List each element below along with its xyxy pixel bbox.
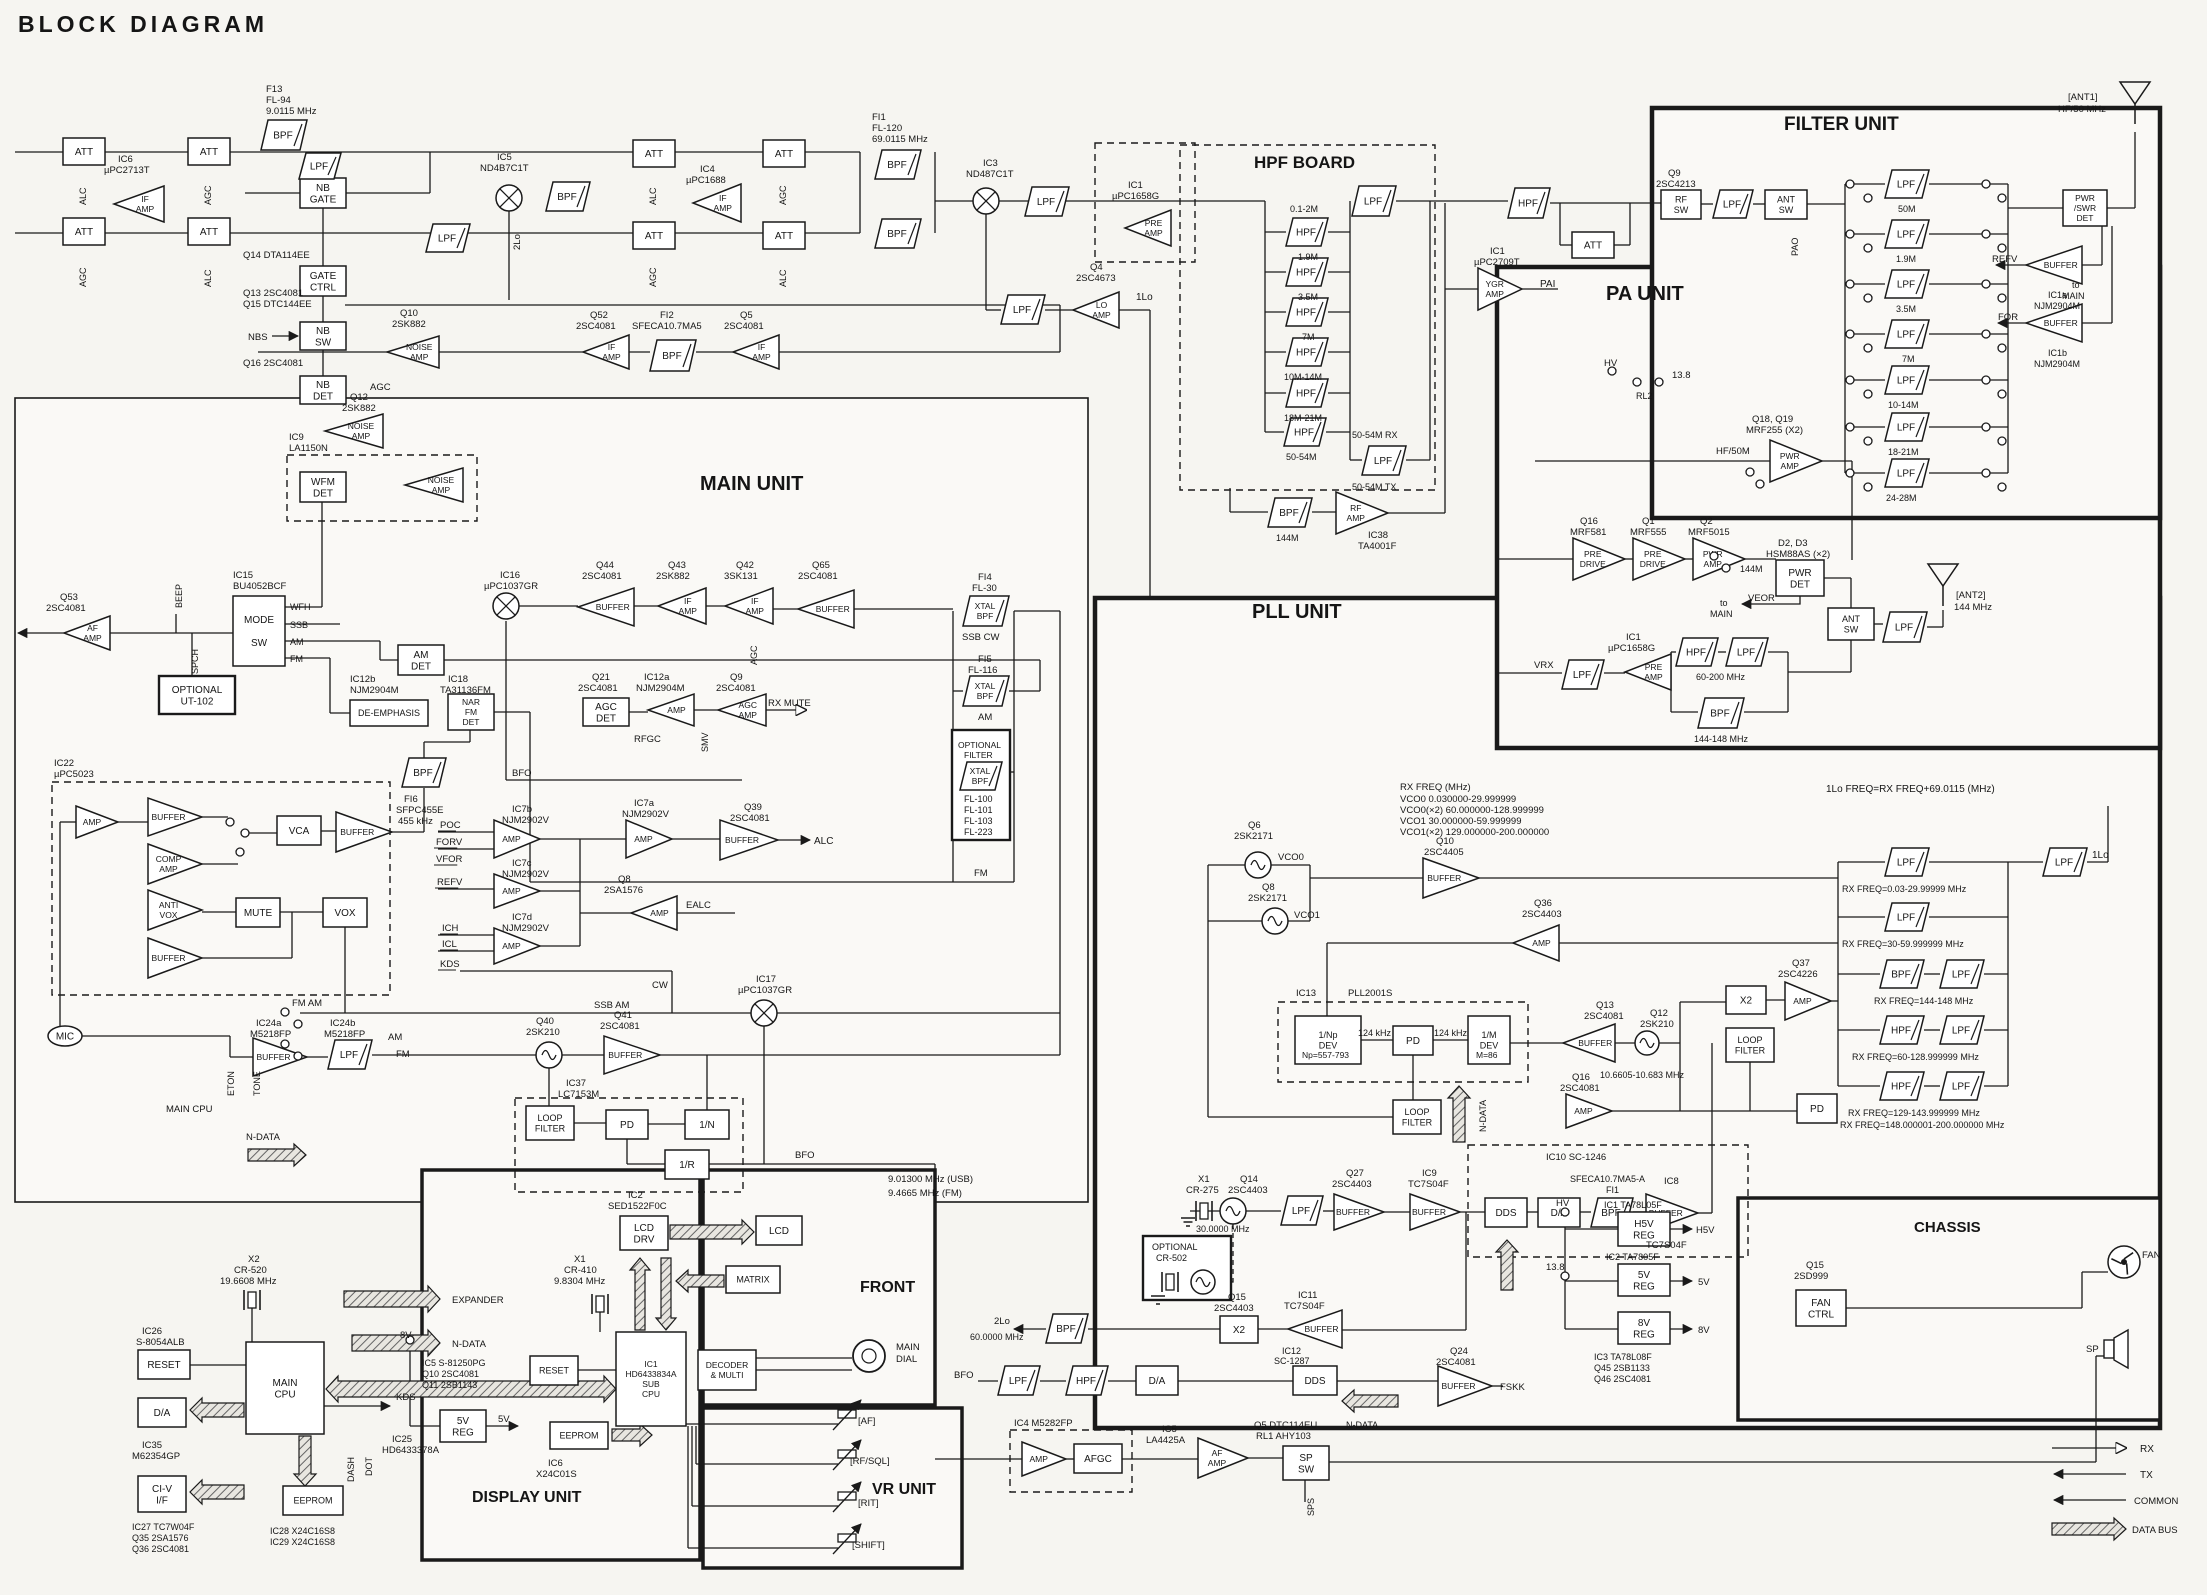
block-label: DET <box>1790 579 1810 590</box>
block-label: PD <box>1810 1104 1824 1115</box>
block-label: VOX <box>160 910 178 920</box>
block-label: AMP <box>410 352 429 362</box>
label-10m-14m: 10M-14M <box>1284 372 1322 382</box>
block-label: HPF <box>1296 348 1316 359</box>
data-bus-arrow <box>294 1436 316 1486</box>
block-label: LPF <box>1895 623 1913 634</box>
switch-contact <box>1846 376 1854 384</box>
label-sps: SPS <box>1306 1498 1316 1516</box>
block-label: LPF <box>1292 1206 1310 1217</box>
label-fan: FAN <box>2142 1250 2161 1261</box>
block-label: VCA <box>289 826 310 837</box>
block-label: AMP <box>1347 513 1366 523</box>
block-label: AMP <box>1486 289 1505 299</box>
label-rx-freq-30-59-999999-mhz: RX FREQ=30-59.999999 MHz <box>1842 939 1964 949</box>
label-main-cpu: MAIN CPU <box>166 1104 213 1115</box>
label-9-4665-mhz-fm-: 9.4665 MHz (FM) <box>888 1188 962 1199</box>
label-rx-freq-129-143-999999-mhz: RX FREQ=129-143.999999 MHz <box>1848 1108 1980 1118</box>
label-m62354gp: M62354GP <box>132 1451 180 1462</box>
potentiometer-icon <box>838 1492 856 1500</box>
label-q10: Q10 <box>400 308 418 319</box>
label-ic1: IC1 <box>1128 180 1143 191</box>
label-filter-unit: FILTER UNIT <box>1784 114 1899 135</box>
label-refv: REFV <box>1992 254 2018 265</box>
label-ic38: IC38 <box>1368 530 1388 541</box>
block-label: CTRL <box>1808 1309 1835 1320</box>
potentiometer-icon <box>838 1410 856 1418</box>
label-njm2902v: NJM2902V <box>622 809 670 820</box>
label-ic9: IC9 <box>1422 1168 1437 1179</box>
block-label: DDS <box>1304 1376 1325 1387</box>
label-am: AM <box>388 1032 402 1043</box>
label-hd6433378a: HD6433378A <box>382 1445 440 1456</box>
switch-contact <box>1998 244 2006 252</box>
label-la4425a: LA4425A <box>1146 1435 1186 1446</box>
switch-contact <box>294 1052 302 1060</box>
block-label: 8V <box>1638 1318 1651 1329</box>
label-2sc4405: 2SC4405 <box>1424 847 1464 858</box>
label-ic27-tc7w04f: IC27 TC7W04F <box>132 1522 195 1532</box>
label-d2-d3: D2, D3 <box>1778 538 1808 549</box>
label-alc: ALC <box>78 187 88 205</box>
label-filter: FILTER <box>964 750 993 760</box>
block-label: BUFFER <box>2044 318 2078 328</box>
label-q52: Q52 <box>590 310 608 321</box>
label-alc: ALC <box>814 836 833 847</box>
block-label: SW <box>1844 624 1859 634</box>
block-label: AMP <box>502 834 521 844</box>
block-label: PWR <box>1788 568 1811 579</box>
label--pc1658g: µPC1658G <box>1608 643 1655 654</box>
label-ic6: IC6 <box>548 1458 563 1469</box>
label-bu4052bcf: BU4052BCF <box>233 581 287 592</box>
block-label: AF <box>1212 1448 1223 1458</box>
block-label: LPF <box>1897 376 1915 387</box>
block-label: HPF <box>1296 268 1316 279</box>
label-cr-520: CR-520 <box>234 1265 267 1276</box>
label-q36-2sc4081: Q36 2SC4081 <box>132 1544 189 1554</box>
label-q10-2sc4081: Q10 2SC4081 <box>422 1369 479 1379</box>
label-to: to <box>1720 598 1728 608</box>
block-label: BUFFER <box>1442 1381 1476 1391</box>
label-forv: FORV <box>436 837 463 848</box>
label-13-8: 13.8 <box>1546 1262 1565 1273</box>
label-common: COMMON <box>2134 1496 2178 1507</box>
label-2sd999: 2SD999 <box>1794 1271 1828 1282</box>
label--af-: [AF] <box>858 1416 875 1427</box>
block-label: GATE <box>310 194 337 205</box>
label-2sc4081: 2SC4081 <box>716 683 756 694</box>
switch-contact <box>1756 480 1764 488</box>
block-label: ATT <box>1584 241 1602 252</box>
block-label: IF <box>758 342 766 352</box>
label--ant1-: [ANT1] <box>2068 92 2098 103</box>
block-label: IF <box>684 596 692 606</box>
switch-contact <box>1722 564 1730 572</box>
label-vrx: VRX <box>1534 660 1554 671</box>
block-label: AGC <box>595 702 617 713</box>
label-kds: KDS <box>440 959 460 970</box>
switch-contact <box>1655 378 1663 386</box>
block-label: 1/N <box>699 1120 715 1131</box>
label-q8: Q8 <box>1262 882 1275 893</box>
label-mrf555: MRF555 <box>1630 527 1666 538</box>
block-label: RESET <box>539 1366 570 1376</box>
switch-contact <box>1982 376 1990 384</box>
block-label: HPF <box>1294 428 1314 439</box>
label-main: MAIN <box>896 1342 920 1353</box>
label-x1: X1 <box>574 1254 586 1265</box>
block-label: LPF <box>1013 305 1031 316</box>
label-ic7d: IC7d <box>512 912 532 923</box>
switch-contact <box>1561 1272 1569 1280</box>
block-label: VOX <box>334 908 355 919</box>
label-tone: TONE <box>252 1071 262 1096</box>
label-50m: 50M <box>1898 204 1916 214</box>
label-hv: HV <box>1556 1198 1570 1209</box>
label-2sc4081: 2SC4081 <box>600 1021 640 1032</box>
label-ic25: IC25 <box>392 1434 412 1445</box>
label-vco1-30-000000-59-999999: VCO1 30.000000-59.999999 <box>1400 816 1522 827</box>
label-smv: SMV <box>700 732 710 752</box>
label-q41: Q41 <box>614 1010 632 1021</box>
block-label: H5V <box>1634 1219 1654 1230</box>
label-ic29-x24c16s8: IC29 X24C16S8 <box>270 1537 335 1547</box>
block-label: HPF <box>1518 199 1538 210</box>
label-13-8: 13.8 <box>1672 370 1691 381</box>
label-q9: Q9 <box>1668 168 1681 179</box>
label-q39: Q39 <box>744 802 762 813</box>
block-label: NOISE <box>428 475 455 485</box>
block-label: BUFFER <box>1578 1038 1612 1048</box>
label--rit-: [RIT] <box>858 1498 879 1509</box>
block-label: DRIVE <box>1580 559 1606 569</box>
block-label: BPF <box>1891 970 1910 981</box>
label-vco0-2-60-000000-128-999999: VCO0(×2) 60.000000-128.999999 <box>1400 805 1544 816</box>
label-ic17: IC17 <box>756 974 776 985</box>
block-label: FILTER <box>1402 1117 1433 1127</box>
label-ic6: IC6 <box>118 154 133 165</box>
label-veor: VEOR <box>1748 593 1775 604</box>
label-pao: PAO <box>1790 238 1800 256</box>
label-q27: Q27 <box>1346 1168 1364 1179</box>
label-wfh: WFH <box>290 602 311 612</box>
label-q37: Q37 <box>1792 958 1810 969</box>
label-rl1-ahy103: RL1 AHY103 <box>1256 1431 1311 1442</box>
label-rl2: RL2 <box>1636 391 1653 401</box>
block-label: DET <box>313 488 333 499</box>
label-fi5: FI5 <box>978 654 992 665</box>
label-agc: AGC <box>370 382 391 393</box>
block-label: IF <box>141 194 149 204</box>
label-ic12: IC12 <box>1282 1346 1301 1356</box>
label-50-54m: 50-54M <box>1286 452 1317 462</box>
label-2sc4673: 2SC4673 <box>1076 273 1116 284</box>
label-vco0: VCO0 <box>1278 852 1304 863</box>
main-dial[interactable] <box>853 1340 885 1372</box>
label-sfeca10-7ma5-a: SFECA10.7MA5-A <box>1570 1174 1645 1184</box>
switch-contact <box>281 1040 289 1048</box>
label-sed1522f0c: SED1522F0C <box>608 1201 667 1212</box>
block-label: LPF <box>1009 1376 1027 1387</box>
label-2sk2171: 2SK2171 <box>1248 893 1287 904</box>
block-label: BPF <box>972 776 989 786</box>
label-hf-50-mhz: HF/50 MHz <box>2058 104 2106 115</box>
label-dial: DIAL <box>896 1354 917 1365</box>
label-69-0115-mhz: 69.0115 MHz <box>872 134 928 145</box>
label-alc: ALC <box>778 269 788 287</box>
block-label: LPF <box>1897 423 1915 434</box>
block-label: LPF <box>1897 280 1915 291</box>
block-label: AMP <box>1208 1458 1227 1468</box>
label-bfo: BFO <box>954 1370 974 1381</box>
block-label: NOISE <box>406 342 433 352</box>
block-label: BPF <box>977 611 994 621</box>
label-ic4-m5282fp: IC4 M5282FP <box>1014 1418 1073 1429</box>
block-label: LPF <box>1037 197 1055 208</box>
switch-contact <box>1864 194 1872 202</box>
label-124-khz: 124 kHz <box>1358 1028 1392 1038</box>
block-label: SW <box>251 638 268 649</box>
label-1lo-freq-rx-freq-69-0115-mhz-: 1Lo FREQ=RX FREQ+69.0115 (MHz) <box>1826 784 1995 795</box>
label-rx-freq-144-148-mhz: RX FREQ=144-148 MHz <box>1874 996 1974 1006</box>
block-label: LPF <box>310 162 328 173</box>
label-pai: PAI <box>1540 279 1555 290</box>
label-2sc4081: 2SC4081 <box>578 683 618 694</box>
label-x2: X2 <box>248 1254 260 1265</box>
label-ic5-s-81250pg: IC5 S-81250PG <box>422 1358 486 1368</box>
label-njm2904m: NJM2904M <box>350 685 399 696</box>
block-label: AMP <box>679 606 698 616</box>
label-njm2902v: NJM2902V <box>502 869 550 880</box>
label-2sc4081: 2SC4081 <box>1436 1357 1476 1368</box>
label-fm: FM <box>974 868 988 879</box>
label-ic10-sc-1246: IC10 SC-1246 <box>1546 1152 1606 1163</box>
label-main-unit: MAIN UNIT <box>700 473 803 495</box>
label-ic9: IC9 <box>289 432 304 443</box>
block-label: ATT <box>645 231 663 242</box>
label-block-diagram: BLOCK DIAGRAM <box>18 11 268 37</box>
block-label: AMP <box>159 864 178 874</box>
label-fl-30: FL-30 <box>972 583 997 594</box>
switch-contact <box>1982 330 1990 338</box>
label-144m: 144M <box>1740 564 1763 574</box>
block-label: SW <box>315 337 332 348</box>
block-label: BPF <box>557 192 576 203</box>
block-label: LPF <box>1897 469 1915 480</box>
label-chassis: CHASSIS <box>1914 1219 1981 1236</box>
label-60-0000-mhz: 60.0000 MHz <box>970 1332 1024 1342</box>
label-q65: Q65 <box>812 560 830 571</box>
label-2sk210: 2SK210 <box>1640 1019 1674 1030</box>
label-7m: 7M <box>1302 332 1315 342</box>
switch-contact <box>1864 244 1872 252</box>
block-label: CTRL <box>310 282 337 293</box>
label-hv: HV <box>1604 358 1618 369</box>
label-2sc4081: 2SC4081 <box>724 321 764 332</box>
label-ic7b: IC7b <box>512 804 532 815</box>
label-am: AM <box>978 712 992 723</box>
switch-contact <box>1998 344 2006 352</box>
label-q15: Q15 <box>1228 1292 1246 1303</box>
block-label: 1/R <box>679 1160 695 1171</box>
block-label: BPF <box>273 131 292 142</box>
label-tc7s04f: TC7S04F <box>1646 1240 1687 1251</box>
block-label: LO <box>1096 300 1108 310</box>
switch-contact <box>294 1020 302 1028</box>
block-label: BUFFER <box>1412 1207 1446 1217</box>
label-fi6: FI6 <box>404 794 418 805</box>
label-optional: OPTIONAL <box>958 740 1001 750</box>
label-fl-94: FL-94 <box>266 95 291 106</box>
label--pc5023: µPC5023 <box>54 769 94 780</box>
label-s-8054alb: S-8054ALB <box>136 1337 185 1348</box>
label-vco0-0-030000-29-999999: VCO0 0.030000-29.999999 <box>1400 794 1516 805</box>
block-label: NB <box>316 380 330 391</box>
block-label: BUFFER <box>1304 1324 1338 1334</box>
block-label: BUFFER <box>1427 873 1461 883</box>
block-label: MUTE <box>244 908 273 919</box>
block-label: AMP <box>502 886 521 896</box>
label-vr-unit: VR UNIT <box>872 1481 936 1498</box>
block-label: DET <box>596 713 616 724</box>
label-2sc4226: 2SC4226 <box>1778 969 1818 980</box>
label-hpf-board: HPF BOARD <box>1254 153 1355 172</box>
label-alc: ALC <box>203 269 213 287</box>
block-label: DET <box>411 661 431 672</box>
label-q5: Q5 <box>740 310 753 321</box>
label-ealc: EALC <box>686 900 711 911</box>
antenna-icon <box>2120 82 2150 104</box>
crystal-icon <box>1200 1203 1208 1219</box>
label-q1: Q1 <box>1642 516 1655 527</box>
block-label: BUFFER <box>1336 1207 1370 1217</box>
label-ic3-ta78l08f: IC3 TA78L08F <box>1594 1352 1652 1362</box>
block-label: PRE <box>1145 218 1163 228</box>
block-label: PD <box>1406 1036 1420 1047</box>
block-label: 5V <box>457 1416 470 1427</box>
label-nd487c1t: ND487C1T <box>966 169 1014 180</box>
label-la1150n: LA1150N <box>289 443 328 454</box>
switch-contact <box>1998 194 2006 202</box>
block-label: LCD <box>769 1226 789 1237</box>
label-mrf5015: MRF5015 <box>1688 527 1730 538</box>
block-label: DRV <box>634 1234 655 1245</box>
label-display-unit: DISPLAY UNIT <box>472 1489 582 1506</box>
block-label: SUB <box>642 1379 660 1389</box>
block-label: BPF <box>887 160 906 171</box>
label-fl-120: FL-120 <box>872 123 902 134</box>
block-label: LPF <box>1737 648 1755 659</box>
label-30-0000-mhz: 30.0000 MHz <box>1196 1224 1250 1234</box>
block-label: BPF <box>413 768 432 779</box>
block-label: AMP <box>1030 1454 1049 1464</box>
label-agc: AGC <box>203 185 213 205</box>
label-2lo: 2Lo <box>512 234 523 250</box>
label-fl-101: FL-101 <box>964 805 993 815</box>
label-q13: Q13 <box>1596 1000 1614 1011</box>
block-label: LPF <box>1364 197 1382 208</box>
label-q9: Q9 <box>730 672 743 683</box>
label-ic1a: IC1a <box>2048 290 2067 300</box>
label-nbs: NBS <box>248 332 268 343</box>
label-q42: Q42 <box>736 560 754 571</box>
block-label: NB <box>316 183 330 194</box>
label-455-khz: 455 kHz <box>398 816 433 827</box>
label-beep: BEEP <box>174 584 184 608</box>
block-label: NOISE <box>348 421 375 431</box>
label-m5218fp: M5218FP <box>324 1029 365 1040</box>
label-8v: 8V <box>400 1330 412 1341</box>
label-q10: Q10 <box>1436 836 1454 847</box>
block-label: ATT <box>75 227 93 238</box>
label-q16: Q16 <box>1580 516 1598 527</box>
block-label: BUFFER <box>257 1052 291 1062</box>
label-ic16: IC16 <box>500 570 520 581</box>
label-n-data: N-DATA <box>1346 1420 1378 1430</box>
label-rx-freq-mhz-: RX FREQ (MHz) <box>1400 782 1471 793</box>
block-label: LPF <box>1952 970 1970 981</box>
block-label: SP <box>1299 1453 1313 1464</box>
block-label: AF <box>87 623 98 633</box>
label-njm2904m: NJM2904M <box>2034 301 2080 311</box>
label-vco1-2-129-000000-200-000000: VCO1(×2) 129.000000-200.000000 <box>1400 827 1549 838</box>
label-2sk882: 2SK882 <box>392 319 426 330</box>
block-label: AMP <box>432 485 451 495</box>
label-sfpc455e: SFPC455E <box>396 805 444 816</box>
label-pa-unit: PA UNIT <box>1606 283 1684 305</box>
label-ic8: IC8 <box>1664 1176 1679 1187</box>
label-q46-2sc4081: Q46 2SC4081 <box>1594 1374 1651 1384</box>
label-ic7a: IC7a <box>634 798 655 809</box>
label-50-54m-rx: 50-54M RX <box>1352 430 1398 440</box>
label-np-557-793: Np=557-793 <box>1302 1050 1349 1060</box>
label--pc1037gr: µPC1037GR <box>738 985 792 996</box>
label--pc1688: µPC1688 <box>686 175 726 186</box>
block-label: MIC <box>56 1032 74 1043</box>
crystal-icon <box>596 1296 604 1312</box>
label-data-bus: DATA BUS <box>2132 1525 2178 1536</box>
label-ic1b: IC1b <box>2048 348 2067 358</box>
block-label: ANT <box>1842 614 1861 624</box>
label-q5-dtc114eu: Q5 DTC114EU <box>1254 1420 1317 1431</box>
label-n-data: N-DATA <box>1478 1100 1488 1132</box>
block-label: HPF <box>1296 389 1316 400</box>
switch-contact <box>1982 230 1990 238</box>
label--pc1037gr: µPC1037GR <box>484 581 538 592</box>
label-ic28-x24c16s8: IC28 X24C16S8 <box>270 1526 335 1536</box>
label-ic5: IC5 <box>497 152 512 163</box>
label-q15-dtc144ee: Q15 DTC144EE <box>243 299 312 310</box>
label-2sc4081: 2SC4081 <box>1560 1083 1600 1094</box>
label-2sk210: 2SK210 <box>526 1027 560 1038</box>
label-ic22: IC22 <box>54 758 74 769</box>
block-mode <box>233 596 285 666</box>
label-ta4001f: TA4001F <box>1358 541 1397 552</box>
label-fskk: FSKK <box>1500 1382 1525 1393</box>
block-label: BPF <box>662 351 681 362</box>
label-3sk131: 3SK131 <box>724 571 758 582</box>
label-2sc4081: 2SC4081 <box>576 321 616 332</box>
label-dash: DASH <box>346 1457 356 1482</box>
label-ic12a: IC12a <box>644 672 670 683</box>
block-label: XTAL <box>970 766 991 776</box>
block-label: FAN <box>1811 1298 1830 1309</box>
block-label: AMP <box>714 203 733 213</box>
label-poc: POC <box>440 820 461 831</box>
block-label: DECODER <box>706 1360 749 1370</box>
block-label: AMP <box>136 204 155 214</box>
